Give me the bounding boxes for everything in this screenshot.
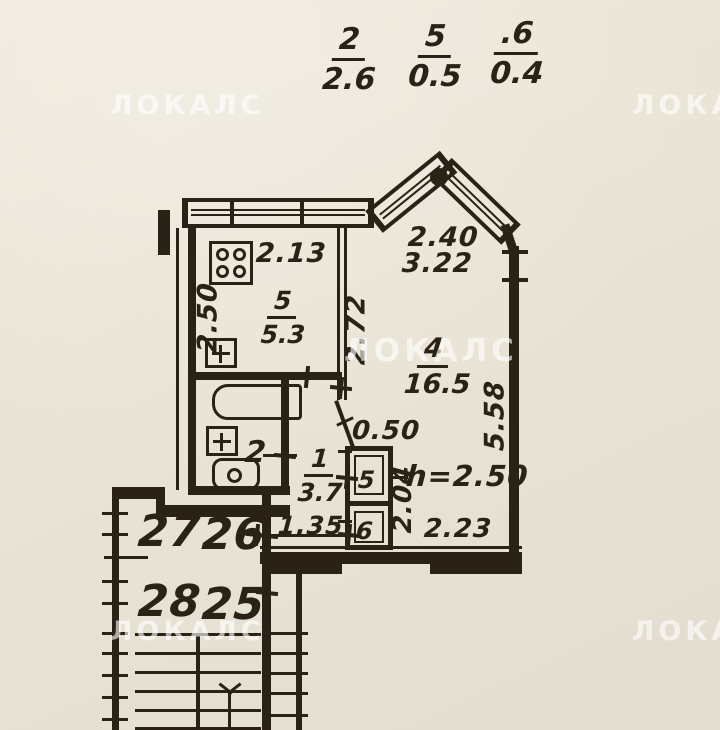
wall-hatch-tick: [102, 602, 128, 605]
dim-niche-width: 0.50: [351, 418, 421, 444]
closet-lower-number: 6: [355, 519, 374, 543]
wall-bottom-step-right: [430, 564, 522, 574]
kitchen-area: 5.3: [256, 319, 310, 348]
fraction-denominator: 0.5: [407, 58, 463, 93]
floor-plan-scan: 2 2.6 5 0.5 .6 0.4 ЛОКАЛС ЛОКАЛС ЛОКАЛС …: [0, 0, 720, 730]
kitchen-number: 5: [267, 288, 299, 319]
wall-right-tick: [502, 250, 528, 254]
wall-hatch-tick: [102, 533, 128, 536]
watermark-bottom-left: ЛОКАЛС: [110, 618, 265, 645]
wall-hatch-tick: [270, 672, 308, 675]
wall-corner-stub: [158, 210, 170, 255]
fraction-numerator: 5: [417, 21, 452, 58]
wall-hatch-tick: [102, 512, 128, 515]
wall-kitchen-bottom: [192, 372, 342, 380]
wall-hatch-tick: [102, 580, 128, 583]
wall-bottom-step-left: [268, 564, 342, 574]
wall-hatch-tick: [270, 692, 308, 695]
wall-hatch-tick: [270, 632, 308, 635]
apartment-number-26: 26: [200, 513, 266, 557]
hall-label: 1 3.7: [296, 446, 344, 507]
header-fraction-3: .6 0.4: [490, 18, 544, 89]
stove-icon: [209, 241, 253, 285]
dim-room-bottom: 2.23: [423, 516, 493, 542]
wall-hatch-tick: [102, 718, 128, 721]
dim-niche-depth: 2.04: [390, 462, 416, 536]
wall-hatch-tick: [102, 696, 128, 699]
ceiling-height-label: h=2.50: [405, 462, 530, 491]
fraction-numerator: .6: [494, 18, 541, 55]
watermark-top-right: ЛОКАЛС: [632, 92, 720, 119]
bathroom-number: 2: [244, 438, 268, 468]
dim-kitchen-depth: 2.50: [195, 281, 222, 355]
wall-hatch-tick: [102, 674, 128, 677]
window-mullion: [230, 198, 234, 224]
kitchen-room-label: 5 5.3: [257, 288, 309, 349]
bathroom-label-dash: [263, 454, 297, 457]
hall-number: 1: [304, 446, 336, 477]
wall-bottom-band: [260, 552, 522, 564]
bay-peak-dot: [430, 168, 448, 186]
dim-bay-width: 2.40: [407, 224, 480, 251]
fraction-numerator: 2: [331, 24, 366, 61]
wall-hatch-tick: [270, 652, 308, 655]
kitchen-window: [182, 198, 374, 228]
header-fraction-1: 2 2.6: [322, 24, 376, 95]
wall-right: [509, 246, 519, 558]
living-room-area: 16.5: [403, 368, 463, 399]
dim-room-right-side: 5.58: [482, 378, 509, 454]
hall-area: 3.7: [295, 477, 345, 506]
wall-right-tick: [502, 278, 528, 282]
fraction-denominator: 0.4: [489, 55, 545, 90]
stair-left-wall: [112, 487, 119, 730]
apartment-number-27: 27: [136, 510, 202, 554]
stair-flight-divider: [196, 633, 200, 730]
closet-divider: [345, 501, 393, 506]
header-fraction-2: 5 0.5: [408, 21, 462, 92]
watermark-center: ЛОКАЛС: [344, 336, 518, 367]
fraction-denominator: 2.6: [321, 61, 377, 96]
bay-window-left-wing: [365, 151, 457, 233]
washbasin-icon: [206, 426, 238, 456]
dim-kitchen-width: 2.13: [255, 240, 328, 267]
watermark-top-left: ЛОКАЛС: [110, 92, 265, 119]
door-mark-room: [329, 376, 353, 400]
wall-left: [188, 228, 196, 492]
wall-bottom-line: [260, 546, 522, 549]
window-mullion: [300, 198, 304, 224]
wall-hatch-tick: [270, 714, 308, 717]
bathtub-icon: [212, 384, 302, 420]
wall-left-outer-line: [176, 228, 179, 490]
wall-hatch-tick: [102, 652, 128, 655]
dim-bay-length: 3.22: [401, 250, 474, 277]
closet-upper-number: 5: [357, 468, 376, 492]
watermark-bottom-right: ЛОКАЛС: [632, 618, 720, 645]
stair-direction-arrow-icon: [210, 684, 250, 730]
